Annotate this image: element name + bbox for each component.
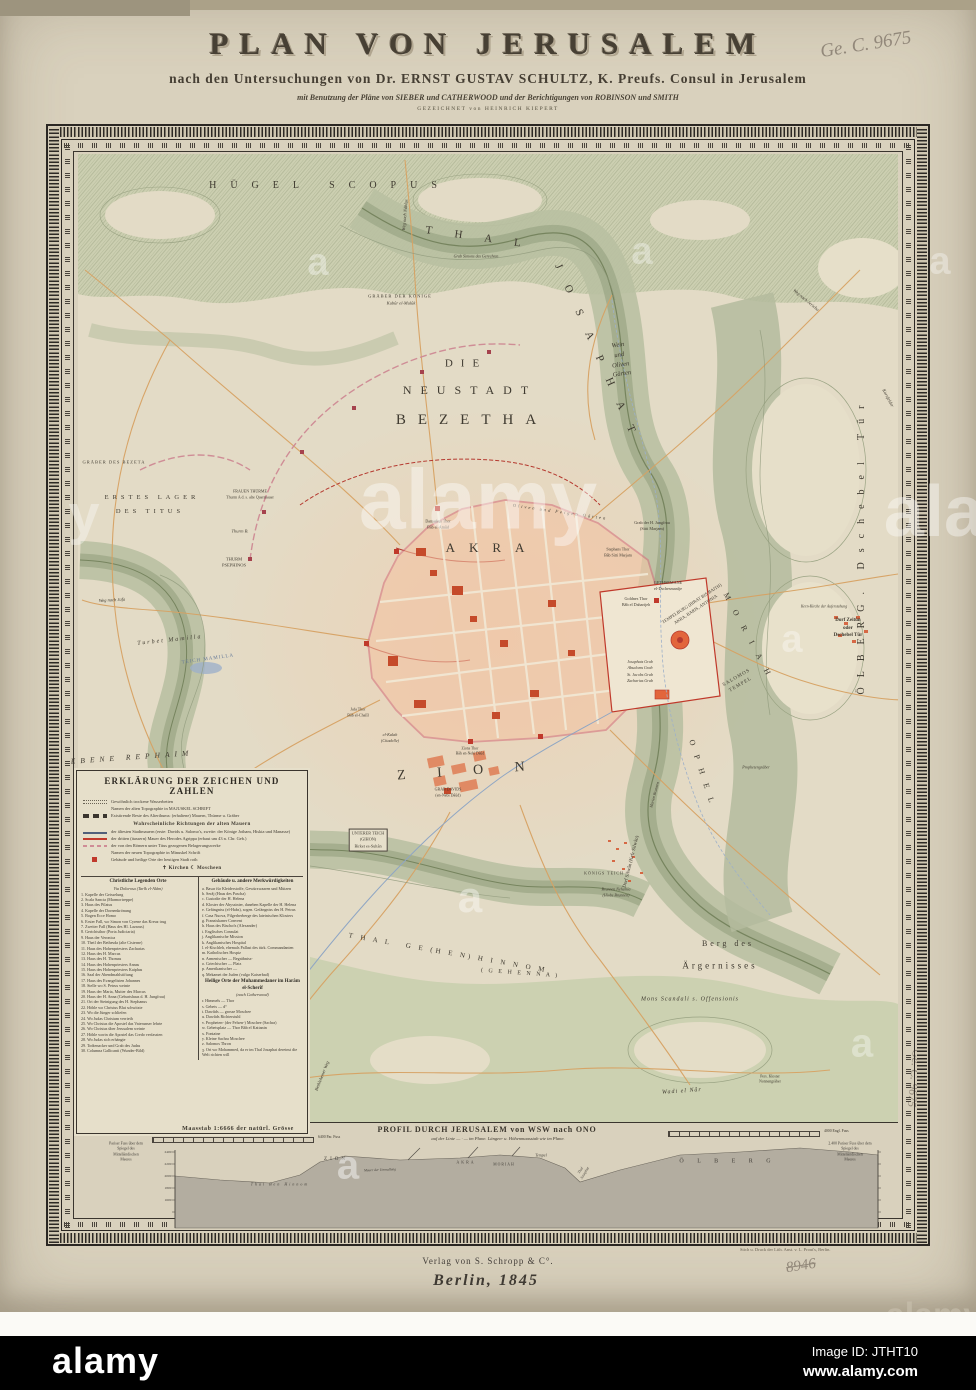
map-label: el-Kalah (Citadelle) <box>381 732 399 744</box>
photo-background <box>0 1312 976 1336</box>
map-label: Zions Thor Bâb en-Nebi Dâûd <box>456 747 484 758</box>
legend-list-item: q. Mekamet der Juden (vulgo Kaiserbad) <box>202 972 303 977</box>
elevation-profile: Maasstab 1:6666 der natürl. Grösse PROFI… <box>78 1122 898 1218</box>
map-label: Berg des <box>702 939 754 949</box>
legend-left-subheader: Via Dolorosa (Tarîk el-Alâm) <box>81 886 195 891</box>
map-label: Mons Scandali s. Offensionis <box>641 996 739 1003</box>
map-label: THURM PSEPHINOS <box>222 557 246 570</box>
legend-entry: Gewöhnlich trockene Wasserbetten <box>83 799 301 806</box>
alamy-stock-photo-page: { "colors":{"paper":"#d9d1bd","field":"#… <box>0 0 976 1390</box>
map-label: NEUSTADT <box>403 383 537 397</box>
map-label: Ärgernisses <box>682 961 757 972</box>
map-label: Damaskus Thor Bâb el-Amûd <box>425 518 450 529</box>
legend-entry-text: Existirende Reste des Alterthums: (erhal… <box>111 813 239 820</box>
profile-label: 1800 <box>165 1186 172 1190</box>
scale-bar-paris-feet <box>152 1137 314 1143</box>
legend-entry: Namen der neuen Topographie in Minuskel … <box>83 850 301 857</box>
profile-label: AKRA <box>456 1160 475 1165</box>
map-label: Prophetengräber <box>742 766 769 771</box>
legend-entry-text: Gebäude und heilige Orte der heutigen St… <box>111 857 197 864</box>
legend-swatch-dry <box>83 800 107 804</box>
legend-entry-text: der ältesten Stadtmauern (erste: Davids … <box>111 829 290 836</box>
legend-header: ERKLÄRUNG DER ZEICHEN UND ZAHLEN <box>81 776 303 796</box>
legend-entry-text: Namen der alten Topographie in MAJUSKEL … <box>111 806 211 813</box>
legend-entry: Namen der alten Topographie in MAJUSKEL … <box>83 806 301 813</box>
map-label: Grab der H. Jungfrau (Sitti Marjam) <box>634 520 670 532</box>
map-label: Josaphats Grab Absaloms Grab St. Jacobs … <box>627 659 653 685</box>
profile-label: Pariser Fuss über dem Spiegel des Mittel… <box>109 1141 143 1162</box>
map-label: GRÄBER DER KÖNIGE <box>368 293 432 298</box>
map-label: Goldnes Thor Bâb el Daharijeh <box>622 596 650 608</box>
legend-entry: der dritten (äussern) Mauer des Herodes … <box>83 836 301 843</box>
publisher-line: Verlag von S. Schropp & C°. <box>422 1256 553 1266</box>
map-label: Dorf Zeitûn oder Dschebel Tûr <box>834 617 863 640</box>
legend-symbol-key: Gewöhnlich trockene WasserbettenNamen de… <box>77 799 307 873</box>
map-label: Thurm B. <box>231 528 248 533</box>
legend-entry-text: Gewöhnlich trockene Wasserbetten <box>111 799 173 806</box>
map-label: UNTERER TEICH (GIHON) Birket es-Sultân <box>349 829 388 852</box>
legend-entry: der von den Römern unter Titus gezogenen… <box>83 843 301 850</box>
alamy-logo[interactable]: alamy <box>52 1340 159 1382</box>
scale-bar-label: 4000 Engl. Fuss <box>824 1129 849 1133</box>
map-label: BEZETHA <box>396 411 548 429</box>
legend-entry: ✝ Kirchen ☾ Moscheen <box>83 865 301 873</box>
map-sheet: PLAN VON JERUSALEM nach den Untersuchung… <box>0 0 976 1312</box>
profile-label: 2.400 Pariser Fuss über dem Spiegel des … <box>828 1141 871 1162</box>
profile-subtitle: auf der Linie — · — im Plane. Längen- u.… <box>431 1136 564 1141</box>
printer-line: Stich u. Druck der Lith. Anst. v. L. Pro… <box>740 1247 831 1252</box>
legend-entry: Gebäude und heilige Orte der heutigen St… <box>83 857 301 864</box>
legend-left-items: 1. Kapelle der Geisselung2. Scala Sancta… <box>81 892 195 1054</box>
legend-list-item: 30. Columna Gallicanti (Wunder-Bild) <box>81 1048 195 1053</box>
map-label: Kubûr el-Mulûk <box>387 300 416 305</box>
legend-swatch-ruin <box>83 814 107 818</box>
profile-label: 2200 <box>165 1162 172 1166</box>
legend-right-header: Gebäude u. andere Merkwürdigkeiten <box>202 879 303 886</box>
map-label: ERSTES LAGER <box>105 494 200 502</box>
map-label: HÜGEL SCOPUS <box>209 180 451 192</box>
legend-entry: der ältesten Stadtmauern (erste: Davids … <box>83 829 301 836</box>
profile-label: 2000 <box>165 1174 172 1178</box>
scale-bar-english-feet <box>668 1131 820 1137</box>
map-label: DES TITUS <box>116 508 184 516</box>
legend-list-item: e. Gefängniss (el-Habs), sogen. Gefängni… <box>202 907 303 912</box>
legend-right-items: a. Basar für Kleiderstoffe, Gewürzwaaren… <box>202 886 303 978</box>
legend-entry-text: der dritten (äussern) Mauer des Herodes … <box>111 836 246 843</box>
legend-list-item: ʒ. Ort wo Mohammed, da er im Thal Josaph… <box>202 1047 303 1058</box>
map-label: Pers. Kloster Nonnengräber <box>759 1075 781 1086</box>
scale-bar-label: 6400 Par. Fuss <box>318 1135 340 1139</box>
map-label: GETHSEMANE el-Dschesmanîje <box>654 580 682 592</box>
map-label: Grab Simons des Gerechten <box>454 255 499 260</box>
alamy-website-link[interactable]: www.alamy.com <box>803 1363 918 1380</box>
map-label: Stephans Thor Bâb Sitti Marjam <box>604 546 632 557</box>
map-label: AKRA <box>446 540 539 556</box>
profile-label: MORIAH <box>493 1163 514 1168</box>
legend-entry-text: der von den Römern unter Titus gezogenen… <box>111 843 221 850</box>
map-label: FRAUEN THÜRME Thurm A d. s. alte Quermau… <box>226 488 274 499</box>
place-and-date: Berlin, 1845 <box>433 1272 539 1290</box>
profile-title: PROFIL DURCH JERUSALEM von WSW nach ONO <box>378 1125 597 1134</box>
legend-entry-text: Namen der neuen Topographie in Minuskel … <box>111 850 200 857</box>
legend-haram-subheader: (nach Catherwood) <box>202 992 303 997</box>
legend-entry: Existirende Reste des Alterthums: (erhal… <box>83 813 301 820</box>
profile-label: 1600 <box>165 1198 172 1202</box>
legend-swatch-redsq <box>92 857 97 862</box>
legend-column-christian: Christliche Legenden Orte Via Dolorosa (… <box>81 877 199 1059</box>
image-id-label: Image ID: JTHT10 <box>812 1344 918 1359</box>
map-label: DIE <box>445 357 487 370</box>
map-label: GRÄBER DES BEZETA <box>83 459 146 464</box>
map-label: GRAB DAVIDS (en-Nebi Dâûd) <box>435 786 462 797</box>
legend-swatch-wall1 <box>83 832 107 834</box>
legend-panel: ERKLÄRUNG DER ZEICHEN UND ZAHLEN Gewöhnl… <box>76 770 308 1134</box>
alamy-footer-bar: alamy Image ID: JTHT10 www.alamy.com <box>0 1336 976 1390</box>
map-label: ÖLBERG. Dschebel Tûr <box>856 396 868 695</box>
legend-swatch-titus <box>83 845 107 847</box>
scale-statement: Maasstab 1:6666 der natürl. Grösse <box>182 1126 294 1132</box>
profile-label: Ö L B E R G <box>679 1158 776 1166</box>
profile-label: ZION <box>324 1157 348 1163</box>
legend-columns: Christliche Legenden Orte Via Dolorosa (… <box>81 876 303 1059</box>
profile-label: Thal Ben Hinnom <box>251 1182 309 1187</box>
map-label: Jafa Thor Bâb el-Chalîl <box>347 706 368 717</box>
map-label: KÖNIGS TEICH <box>584 872 624 877</box>
profile-label: Tempel <box>535 1153 546 1158</box>
legend-haram-items: r. Himmels — Thors. Gebets — d°t. Dawûds… <box>202 998 303 1057</box>
profile-label: 2400 <box>165 1150 172 1154</box>
map-label: Kern-Kirche der Auferstehung <box>801 605 847 610</box>
legend-swatch-wall3 <box>83 838 107 840</box>
legend-entry: Wahrscheinliche Richtungen der alten Mau… <box>83 821 301 829</box>
legend-column-buildings: Gebäude u. andere Merkwürdigkeiten a. Ba… <box>199 877 303 1059</box>
legend-haram-header: Heilige Orte der Muhammedaner im Harâm e… <box>202 979 303 992</box>
